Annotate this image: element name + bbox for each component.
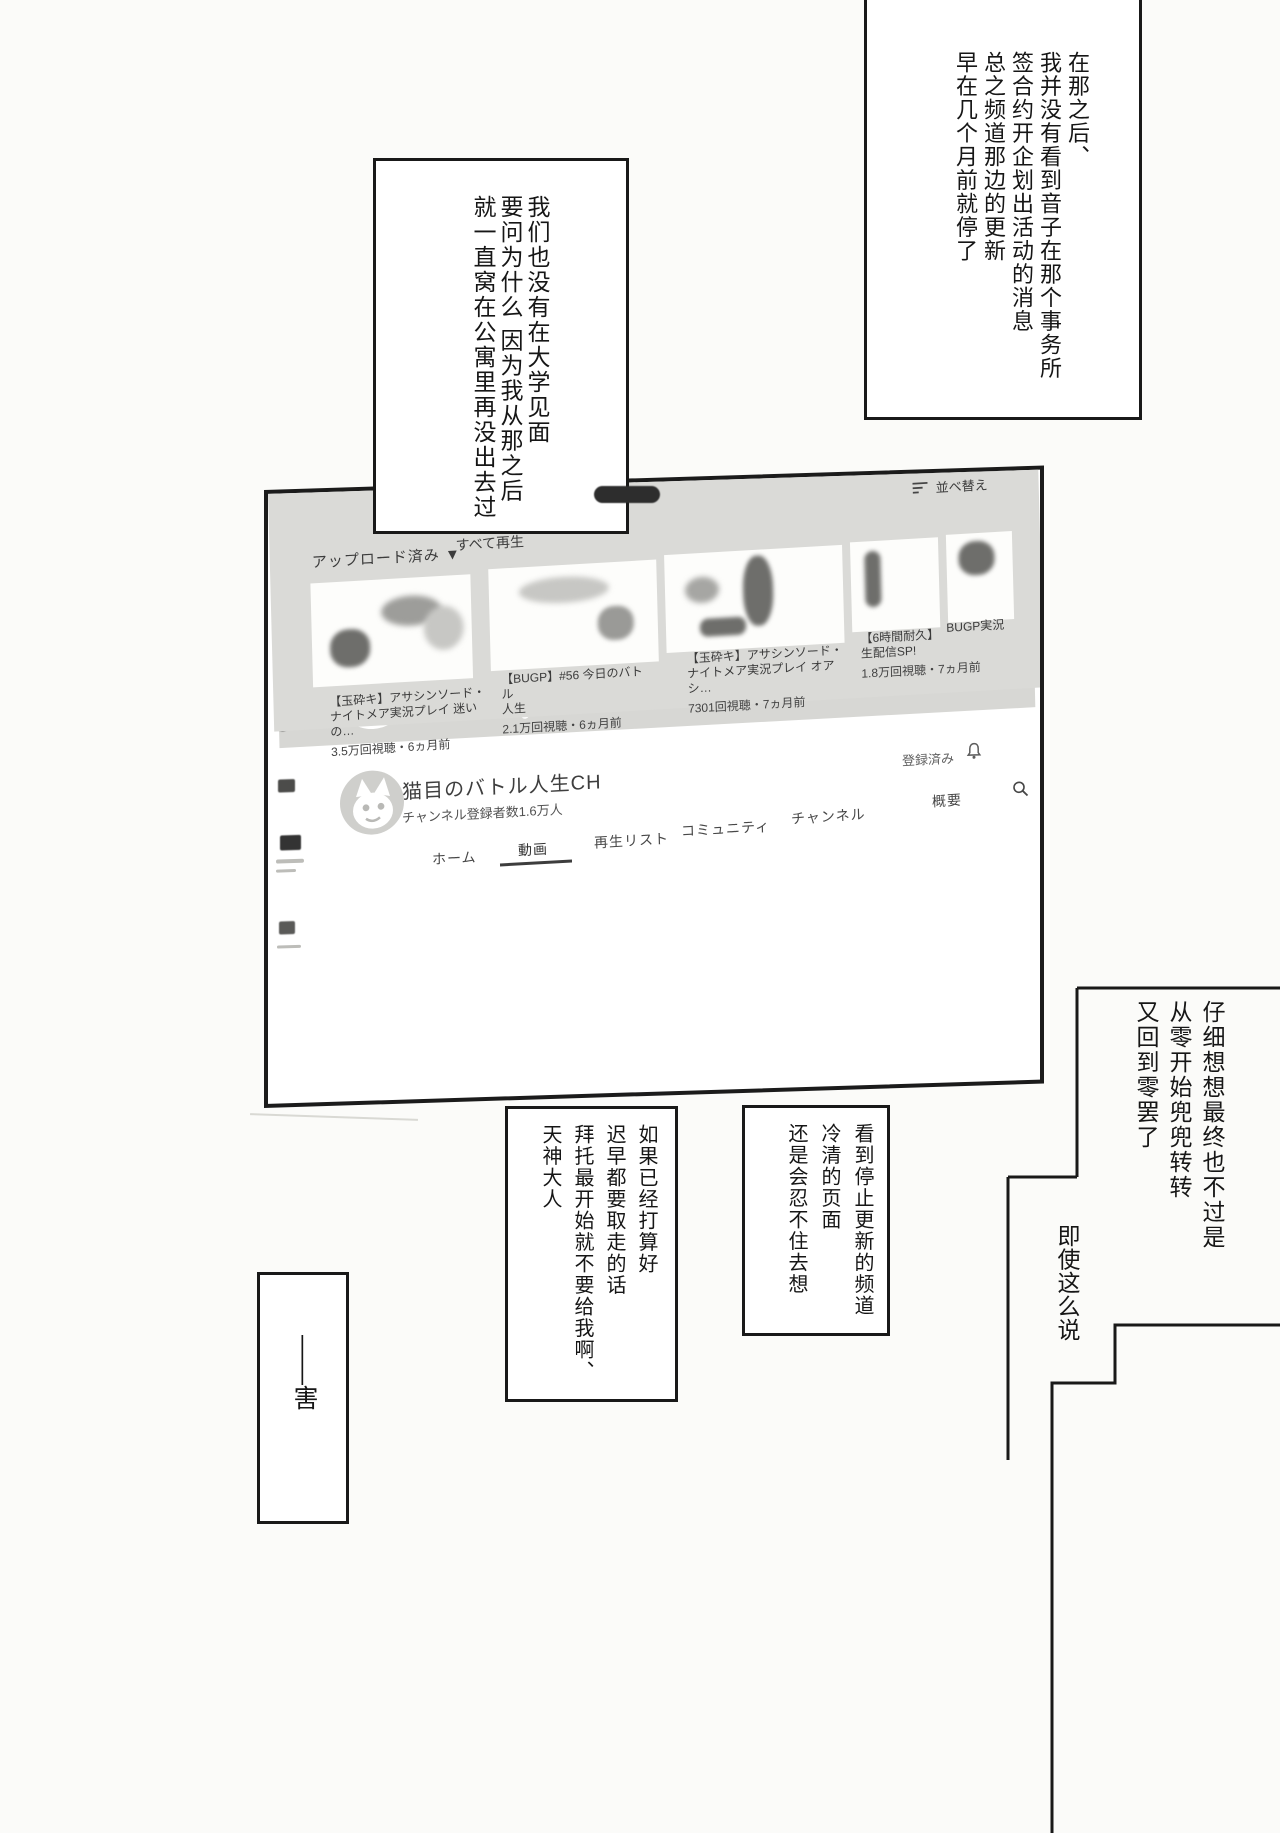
- sidebar-history-icon[interactable]: [279, 921, 295, 935]
- active-tab-underline: [500, 859, 572, 866]
- avatar-cat-sketch: [340, 770, 404, 836]
- subscription-bell-icon[interactable]: [966, 741, 982, 760]
- tab-playlists[interactable]: 再生リスト: [594, 828, 669, 852]
- video-caption[interactable]: 【BUGP】#56 今日のバトル 人生 2.1万回視聴・6ヵ月前: [501, 664, 653, 738]
- uploads-dropdown[interactable]: アップロード済み ▼: [312, 543, 462, 573]
- sort-icon[interactable]: [912, 481, 928, 495]
- tab-community[interactable]: コミュニティ: [681, 816, 771, 841]
- sort-label[interactable]: 並べ替え: [935, 474, 987, 496]
- video-caption[interactable]: 【玉砕キ】アサシンソード・ ナイトメア実況プレイ 迷いの… 3.5万回視聴・6ヵ…: [329, 684, 501, 760]
- page-crease-line: [250, 1113, 418, 1121]
- speech-box-top-right: 在那之后、 我并没有看到音子在那个事务所 签合约开企划出活动的消息 总之频道那边…: [864, 0, 1142, 420]
- speech-box-bottom-center: 如果已经打算好 迟早都要取走的话 拜托最开始就不要给我啊、 天神大人: [505, 1106, 678, 1402]
- video-title[interactable]: 【玉砕キ】アサシンソード・ ナイトメア実況プレイ 迷いの…: [329, 684, 500, 740]
- speech-text: 看到停止更新的频道 冷清的页面 还是会忍不住去想: [779, 1123, 878, 1317]
- video-thumbnail[interactable]: [488, 560, 659, 672]
- sidebar-library-icon[interactable]: [280, 835, 301, 851]
- video-views: 1.8万回視聴・7ヵ月前: [861, 659, 991, 681]
- scribble: [594, 486, 660, 503]
- tab-about[interactable]: 概要: [932, 790, 963, 812]
- video-title[interactable]: 【BUGP】#56 今日のバトル 人生: [501, 664, 652, 718]
- video-thumbnail[interactable]: [850, 537, 940, 632]
- tab-home[interactable]: ホーム: [432, 847, 477, 869]
- speech-text: ——害: [289, 1335, 319, 1410]
- speech-box-middle: 看到停止更新的频道 冷清的页面 还是会忍不住去想: [742, 1105, 890, 1336]
- sidebar-label-sketch: [277, 945, 301, 949]
- play-all-button[interactable]: すべて再生: [455, 531, 524, 555]
- channel-search-icon[interactable]: [1012, 780, 1029, 798]
- tab-videos[interactable]: 動画: [518, 839, 549, 861]
- video-caption[interactable]: 【玉砕キ】アサシンソード・ ナイトメア実況プレイ オアシ… 7301回視聴・7ヵ…: [687, 642, 859, 717]
- sidebar-subscriptions-icon[interactable]: [278, 779, 295, 793]
- tab-channels[interactable]: チャンネル: [791, 804, 866, 829]
- channel-avatar[interactable]: [340, 770, 404, 836]
- speech-text-aside: 即使这么说: [1052, 1224, 1082, 1342]
- speech-text-right-panel: 仔细想想最终也不过是 从零开始兜兜转转 又回到零罢了: [1129, 1000, 1228, 1250]
- video-thumbnail[interactable]: [664, 545, 845, 653]
- sidebar-label-sketch: [276, 859, 304, 864]
- speech-text: 如果已经打算好 迟早都要取走的话 拜托最开始就不要给我啊、 天神大人: [534, 1124, 662, 1382]
- channel-name: 猫目のバトル人生CH: [402, 765, 602, 804]
- sidebar-label-sketch: [276, 869, 296, 873]
- video-thumbnail[interactable]: [310, 574, 473, 687]
- speech-text: 我们也没有在大学见面 要问为什么 因为我从那之后 就一直窝在公寓里再没出去过: [469, 195, 550, 520]
- subscribed-button[interactable]: 登録済み: [902, 748, 954, 770]
- speech-text: 在那之后、 我并没有看到音子在那个事务所 签合约开企划出活动的消息 总之频道那边…: [951, 51, 1091, 380]
- speech-box-left: 我们也没有在大学见面 要问为什么 因为我从那之后 就一直窝在公寓里再没出去过: [373, 158, 629, 534]
- video-title[interactable]: 【玉砕キ】アサシンソード・ ナイトメア実況プレイ オアシ…: [687, 642, 858, 697]
- video-thumbnail[interactable]: [946, 531, 1014, 623]
- youtube-screenshot-frame: 猫目のバトル人生CH・Yo ← ⌂ JP 検索: [264, 465, 1044, 1108]
- video-views: 2.1万回視聴・6ヵ月前: [502, 714, 652, 738]
- speech-box-bottom-left: ——害: [257, 1272, 349, 1524]
